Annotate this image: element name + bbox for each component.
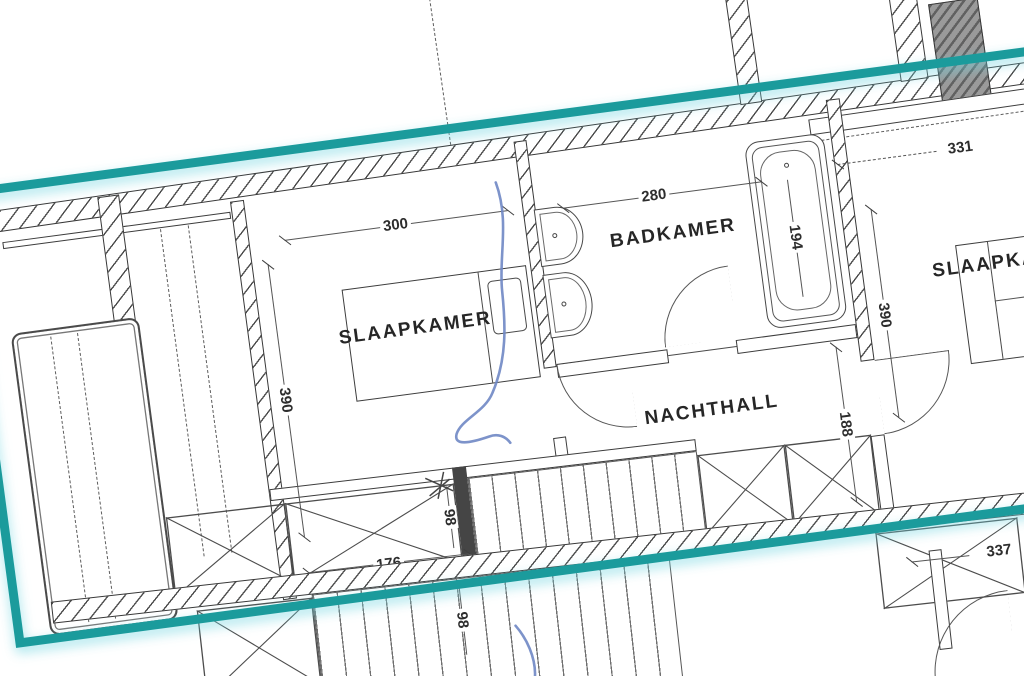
dim-337: 337 bbox=[983, 542, 1016, 560]
dim-98b: 98 bbox=[454, 608, 471, 632]
rotated-drawing: 176 98 98 337 SLAAPKAMER BADKAMER NACHTH… bbox=[0, 25, 1024, 676]
floorplan-scan: 176 98 98 337 SLAAPKAMER BADKAMER NACHTH… bbox=[0, 0, 1024, 676]
